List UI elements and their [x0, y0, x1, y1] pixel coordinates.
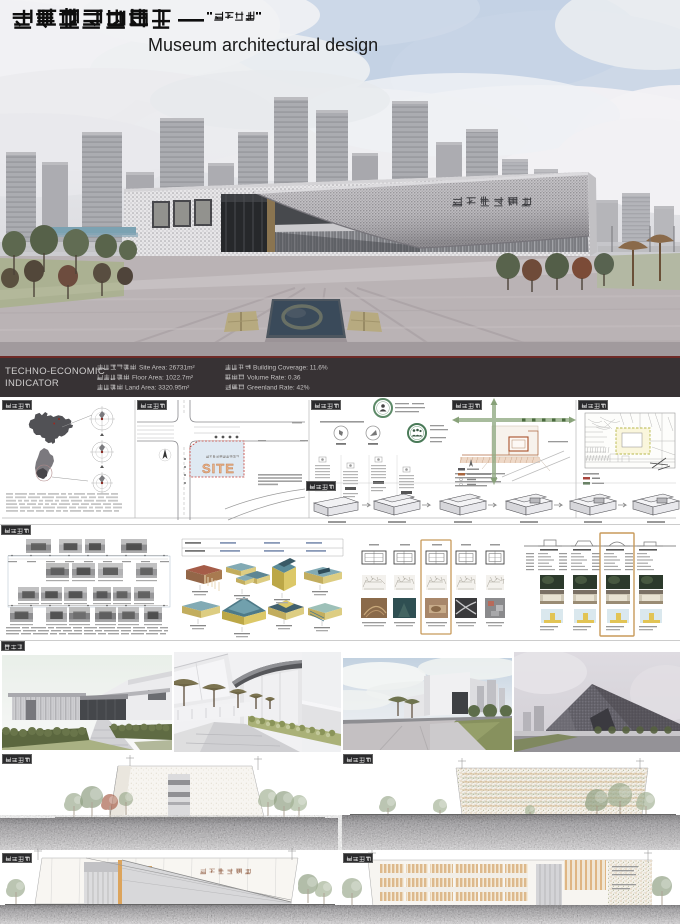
svg-text:Floor Area: 1022.7m²: Floor Area: 1022.7m² [132, 375, 194, 382]
svg-text:Building Coverage: 11.6%: Building Coverage: 11.6% [253, 365, 328, 372]
svg-text:SITE: SITE [202, 461, 235, 476]
svg-text:Volume Rate: 0.36: Volume Rate: 0.36 [247, 375, 301, 382]
svg-text:TECHNO-ECONOMIC: TECHNO-ECONOMIC [5, 366, 105, 377]
svg-text:Greenland Rate: 42%: Greenland Rate: 42% [247, 385, 310, 392]
svg-text:Site Area: 26731m²: Site Area: 26731m² [139, 365, 195, 372]
svg-text:INDICATOR: INDICATOR [5, 378, 59, 389]
svg-text:Land Area: 3320.95m²: Land Area: 3320.95m² [125, 385, 190, 392]
